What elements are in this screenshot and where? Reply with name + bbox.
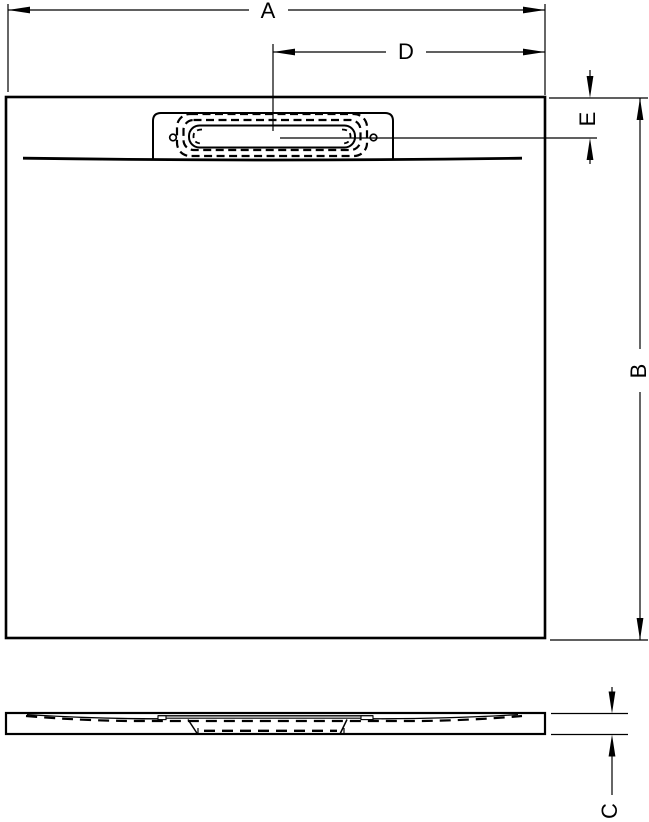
dim-label-a: A (261, 0, 276, 22)
drawing-canvas (0, 0, 649, 822)
cover-end-tab-left (158, 716, 166, 720)
dim-a-arrow-left (8, 7, 30, 14)
dim-label-b: B (628, 364, 649, 379)
dim-a-arrow-right (523, 7, 545, 14)
dim-c-arrow-top (609, 692, 616, 714)
dim-d-arrow-right (523, 49, 545, 56)
dim-d-arrow-left (273, 49, 295, 56)
dim-label-d: D (398, 41, 414, 63)
dim-b-arrow-top (637, 98, 644, 120)
dimension-A (8, 4, 545, 95)
dim-label-c: C (599, 803, 621, 819)
dimension-C (551, 687, 628, 795)
dim-e-arrow-bottom (587, 138, 594, 160)
cover-end-tab-right (361, 716, 373, 720)
dim-label-e: E (577, 112, 599, 127)
dim-e-arrow-top (587, 76, 594, 98)
screw-hole-left (170, 134, 177, 141)
profile-view (6, 713, 545, 735)
technical-drawing-sheet: A D E B C (0, 0, 649, 822)
tray-outline (6, 97, 545, 638)
plan-view (6, 97, 545, 638)
dim-b-arrow-bottom (637, 618, 644, 640)
